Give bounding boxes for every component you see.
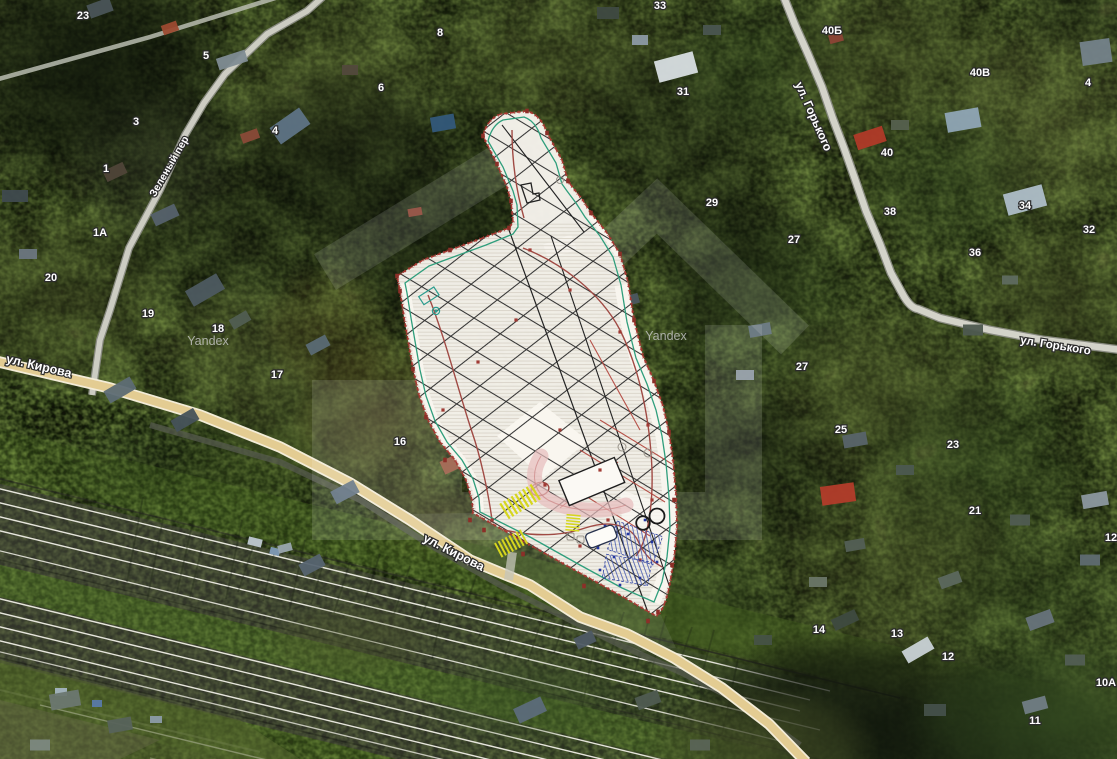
svg-text:1: 1 <box>103 163 109 175</box>
svg-text:27: 27 <box>796 361 808 373</box>
svg-text:11: 11 <box>1029 715 1041 727</box>
svg-text:4: 4 <box>1085 77 1092 89</box>
svg-text:23: 23 <box>77 10 89 22</box>
svg-text:3: 3 <box>133 116 139 128</box>
svg-text:40: 40 <box>881 147 893 159</box>
svg-text:14: 14 <box>813 624 826 636</box>
svg-text:6: 6 <box>378 82 384 94</box>
svg-text:20: 20 <box>45 272 57 284</box>
svg-text:8: 8 <box>437 27 443 39</box>
svg-text:31: 31 <box>677 86 689 98</box>
svg-text:19: 19 <box>142 308 154 320</box>
svg-text:25: 25 <box>835 424 847 436</box>
svg-text:40В: 40В <box>970 67 990 79</box>
svg-text:4: 4 <box>272 125 279 137</box>
svg-text:16: 16 <box>394 436 406 448</box>
svg-text:32: 32 <box>1083 224 1095 236</box>
svg-text:34: 34 <box>1019 200 1032 212</box>
svg-text:Yandex: Yandex <box>187 334 229 348</box>
svg-text:10А: 10А <box>1096 677 1116 689</box>
svg-text:12: 12 <box>1105 532 1117 544</box>
svg-text:27: 27 <box>788 234 800 246</box>
svg-text:1А: 1А <box>93 227 107 239</box>
svg-text:40Б: 40Б <box>822 25 842 37</box>
svg-text:5: 5 <box>203 50 209 62</box>
svg-text:12: 12 <box>942 651 954 663</box>
svg-text:21: 21 <box>969 505 981 517</box>
svg-text:36: 36 <box>969 247 981 259</box>
svg-text:33: 33 <box>654 0 666 12</box>
svg-text:Yandex: Yandex <box>645 329 687 343</box>
svg-text:17: 17 <box>271 369 283 381</box>
svg-text:23: 23 <box>947 439 959 451</box>
svg-text:38: 38 <box>884 206 896 218</box>
svg-text:13: 13 <box>891 628 903 640</box>
svg-text:29: 29 <box>706 197 718 209</box>
